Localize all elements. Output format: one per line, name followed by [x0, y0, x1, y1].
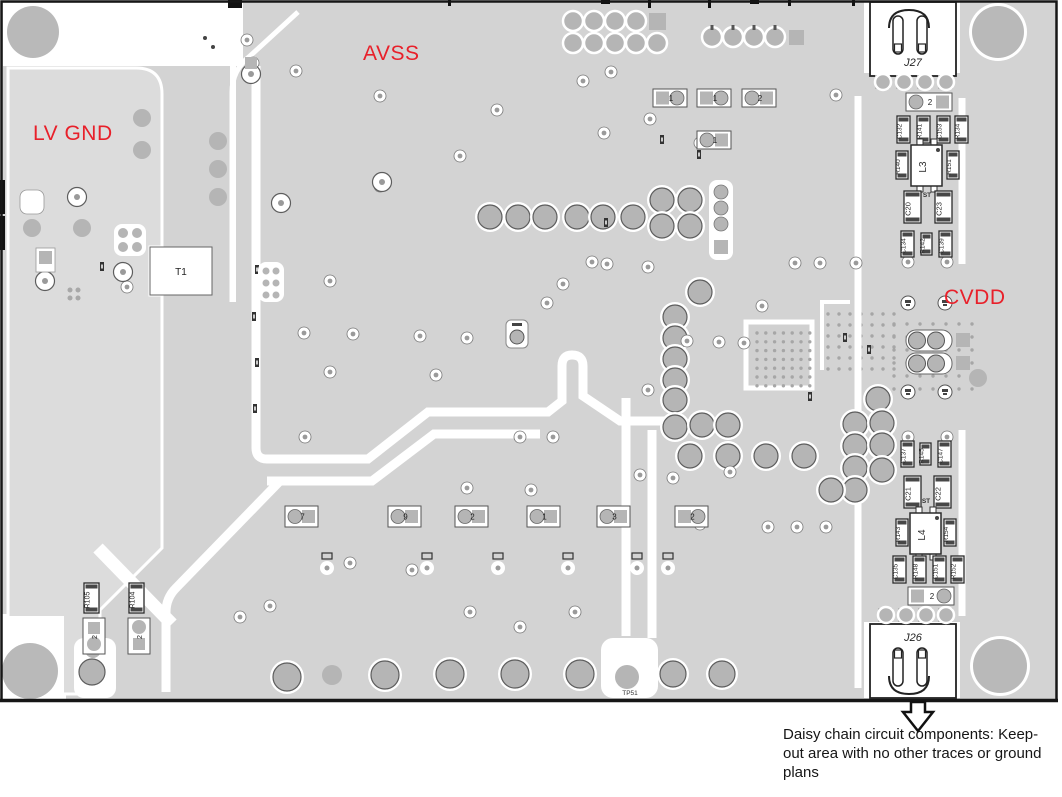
- via-hole: [303, 435, 308, 440]
- jumper: 1: [653, 89, 687, 107]
- passive-component: R145: [919, 443, 932, 465]
- via-hole: [742, 341, 747, 346]
- passive-label: R134: [955, 123, 962, 139]
- fiducial-dot: [957, 387, 960, 390]
- passive-label: C23: [935, 202, 944, 216]
- dot: [76, 288, 81, 293]
- fiducial-dot: [791, 340, 794, 343]
- plain-pad: [73, 219, 91, 237]
- passive-label: C134: [901, 238, 908, 254]
- fiducial-dot: [848, 367, 851, 370]
- pin-mark: [753, 25, 756, 30]
- plain-pad: [209, 160, 227, 178]
- fiducial-dot: [826, 367, 829, 370]
- module-pin: [917, 139, 923, 145]
- fiducial-dot: [892, 348, 895, 351]
- pad: [898, 607, 914, 623]
- pad: [510, 330, 524, 344]
- fiducial-dot: [755, 331, 758, 334]
- via-hole: [793, 261, 798, 266]
- passive-label: R141: [917, 123, 924, 139]
- passive-label: C151: [933, 563, 940, 579]
- pin1-dot: [936, 148, 940, 152]
- plain-pad: [209, 188, 227, 206]
- pad: [936, 96, 949, 109]
- passive-cap: [935, 558, 945, 562]
- fiducial-dot: [881, 356, 884, 359]
- via-hole: [605, 262, 610, 267]
- fiducial-dot: [808, 358, 811, 361]
- via-hole: [824, 525, 829, 530]
- fiducial-dot: [808, 367, 811, 370]
- via-hole: [468, 610, 473, 615]
- jumper: 7: [285, 506, 318, 527]
- pad: [909, 332, 926, 349]
- fiducial-dot: [905, 374, 908, 377]
- via-hole: [906, 435, 911, 440]
- jumper-label: 2: [690, 513, 695, 522]
- via-hole: [328, 279, 333, 284]
- fiducial-dot: [837, 312, 840, 315]
- fiducial-dot: [826, 323, 829, 326]
- passive-label: R152: [951, 563, 958, 579]
- fiducial-dot: [755, 375, 758, 378]
- via-hole: [378, 94, 383, 99]
- passive-component: R154: [943, 519, 956, 546]
- pad: [909, 355, 926, 372]
- pad: [700, 92, 713, 105]
- fiducial-dot: [799, 375, 802, 378]
- fiducial-dot: [848, 323, 851, 326]
- module-pin: [916, 507, 922, 513]
- pad-mark: [942, 389, 948, 392]
- fiducial-dot: [837, 334, 840, 337]
- passive-component: R151: [946, 151, 959, 179]
- fiducial-dot: [799, 358, 802, 361]
- passive-label: C139: [939, 238, 946, 254]
- pad-mark: [906, 393, 910, 395]
- header-pin: [714, 217, 728, 231]
- jumper-label: 1: [542, 513, 547, 522]
- passive-cap: [906, 193, 920, 197]
- header-pin: [714, 201, 728, 215]
- via-hole: [945, 260, 950, 265]
- fiducial-dot: [791, 375, 794, 378]
- passive-component: R152: [951, 556, 965, 583]
- pad: [245, 57, 257, 69]
- through-pad: [690, 413, 714, 437]
- through-pad: [819, 478, 843, 502]
- testpoint-hole: [496, 566, 501, 571]
- dot: [68, 288, 73, 293]
- fiducial-dot: [970, 335, 973, 338]
- fiducial-dot: [782, 349, 785, 352]
- pad: [928, 332, 945, 349]
- via-hole: [646, 388, 651, 393]
- fiducial-dot: [826, 356, 829, 359]
- passive-cap: [898, 153, 907, 157]
- through-pad: [870, 458, 894, 482]
- pad-mark: [905, 389, 911, 392]
- via-hole: [760, 304, 765, 309]
- smd-glyph: [868, 348, 870, 352]
- pin-mark: [774, 25, 777, 30]
- passive-component: C153: [937, 116, 951, 143]
- fiducial-dot: [837, 345, 840, 348]
- via-hole: [590, 260, 595, 265]
- through-pad: [79, 659, 105, 685]
- fiducial-dot: [918, 374, 921, 377]
- through-pad: [678, 214, 702, 238]
- passive-label: R148: [913, 563, 920, 579]
- via-hole: [379, 179, 385, 185]
- pcb-figure: J27J2622C132R141C153R134R140R151L3STC20C…: [0, 0, 1062, 797]
- smd-glyph: [605, 221, 607, 225]
- mounting-hole: [972, 6, 1024, 58]
- via-hole: [671, 476, 676, 481]
- smd-glyph: [254, 407, 256, 411]
- through-pad: [533, 205, 557, 229]
- passive-label: R145: [919, 448, 926, 464]
- fiducial-dot: [881, 334, 884, 337]
- passive-label: C135: [893, 563, 900, 579]
- fiducial-dot: [848, 345, 851, 348]
- fiducial-dot: [755, 349, 758, 352]
- via-hole: [551, 435, 556, 440]
- via-hole: [294, 69, 299, 74]
- mounting-hole: [973, 639, 1027, 693]
- module-label: L3: [918, 161, 929, 173]
- through-pad: [506, 205, 530, 229]
- fiducial-dot: [773, 358, 776, 361]
- pad-cluster: [258, 262, 284, 302]
- fiducial-dot: [881, 323, 884, 326]
- dot: [68, 296, 73, 301]
- fiducial-dot: [764, 349, 767, 352]
- pad: [656, 92, 669, 105]
- passive-label: R105: [85, 592, 92, 609]
- fiducial-dot: [782, 331, 785, 334]
- fiducial-dot: [881, 345, 884, 348]
- fiducial-dot: [870, 323, 873, 326]
- fiducial-dot: [931, 374, 934, 377]
- fiducial-dot: [957, 348, 960, 351]
- fiducial-dot: [791, 331, 794, 334]
- via-hole: [766, 525, 771, 530]
- pad-cluster: [114, 224, 146, 256]
- testpoint-hole: [325, 566, 330, 571]
- passive-component: C20: [904, 191, 922, 223]
- fiducial-dot: [773, 384, 776, 387]
- testpoint-hole: [635, 566, 640, 571]
- fiducial-dot: [764, 340, 767, 343]
- pad: [878, 607, 894, 623]
- via-hole: [581, 79, 586, 84]
- passive-cap: [903, 233, 913, 237]
- lv-gnd-label: LV GND: [33, 122, 113, 145]
- fiducial-dot: [970, 361, 973, 364]
- connector: J27: [870, 2, 956, 76]
- through-pad: [688, 280, 712, 304]
- plain-pad: [23, 219, 41, 237]
- header-pin: [605, 11, 625, 31]
- via-hole: [834, 93, 839, 98]
- fiducial-dot: [870, 312, 873, 315]
- fiducial-dot: [799, 331, 802, 334]
- via-hole: [458, 154, 463, 159]
- fiducial-dot: [970, 322, 973, 325]
- passive-cap: [957, 118, 967, 122]
- pin-mark: [732, 25, 735, 30]
- through-pad: [621, 205, 645, 229]
- passive-cap: [903, 443, 913, 447]
- via-hole: [495, 108, 500, 113]
- jumper-label: 9: [403, 513, 408, 522]
- pad: [937, 589, 951, 603]
- jumper: 2: [908, 587, 954, 605]
- fiducial-dot: [892, 334, 895, 337]
- via-hole: [410, 568, 415, 573]
- pad: [88, 622, 100, 634]
- dot: [203, 36, 207, 40]
- passive-cap: [923, 235, 931, 239]
- smd-glyph: [253, 315, 255, 319]
- passive-label: R143: [895, 526, 902, 542]
- through-pad: [436, 660, 464, 688]
- through-pad: [792, 444, 816, 468]
- passive-cap: [915, 558, 925, 562]
- pad: [263, 292, 270, 299]
- jumper: 2: [906, 93, 952, 111]
- via-hole: [245, 38, 250, 43]
- fiducial-dot: [848, 334, 851, 337]
- via-hole: [302, 331, 307, 336]
- jumper-label: 1: [713, 94, 718, 103]
- through-pad: [663, 388, 687, 412]
- pad: [118, 242, 128, 252]
- pad: [909, 95, 923, 109]
- passive-label: C20: [904, 202, 913, 216]
- testpoint-hole: [666, 566, 671, 571]
- via-hole: [717, 340, 722, 345]
- via-hole: [648, 117, 653, 122]
- passive-cap: [940, 443, 950, 447]
- fiducial-dot: [755, 358, 758, 361]
- fiducial-dot: [808, 375, 811, 378]
- pad: [896, 74, 912, 90]
- smd-glyph: [698, 153, 700, 157]
- via-hole: [854, 261, 859, 266]
- avss-label: AVSS: [363, 42, 419, 65]
- fiducial-dot: [870, 356, 873, 359]
- fiducial-dot: [931, 322, 934, 325]
- passive-cap: [937, 193, 951, 197]
- jumper: 1: [697, 131, 731, 149]
- through-pad: [843, 478, 867, 502]
- via-hole: [529, 488, 534, 493]
- header-pin: [714, 185, 728, 199]
- passive-component: C22: [934, 476, 952, 508]
- passive-label: R154: [943, 526, 950, 542]
- fiducial-dot: [957, 322, 960, 325]
- dot: [76, 296, 81, 301]
- fiducial-dot: [892, 374, 895, 377]
- fiducial-dot: [799, 367, 802, 370]
- via-hole: [602, 131, 607, 136]
- through-pad: [566, 660, 594, 688]
- pin1-dot: [935, 516, 939, 520]
- header-pin1: [714, 240, 728, 254]
- connector: J26: [870, 624, 956, 698]
- jumper-label: 7: [300, 513, 305, 522]
- pcb-layout-figure: J27J2622C132R141C153R134R140R151L3STC20C…: [0, 0, 1062, 797]
- pad: [956, 333, 970, 347]
- module-pin: [930, 507, 936, 513]
- passive-cap: [86, 585, 98, 589]
- via-hole: [518, 435, 523, 440]
- fiducial-dot: [782, 375, 785, 378]
- pad: [273, 280, 280, 287]
- through-pad: [650, 214, 674, 238]
- fiducial-dot: [755, 367, 758, 370]
- fiducial-dot: [791, 384, 794, 387]
- via-hole: [573, 610, 578, 615]
- via-hole: [609, 70, 614, 75]
- through-pad: [870, 433, 894, 457]
- pad-mark: [943, 393, 947, 395]
- cvdd-label: CVDD: [944, 286, 1006, 309]
- passive-component: C137: [901, 441, 915, 467]
- jumper: 1: [527, 506, 560, 527]
- jumper-label: 2: [930, 592, 935, 601]
- via-hole: [818, 261, 823, 266]
- smd-glyph: [809, 395, 811, 399]
- pad-mark: [512, 323, 522, 326]
- via-hole: [728, 470, 733, 475]
- pad: [918, 607, 934, 623]
- passive-cap: [946, 521, 955, 525]
- pad: [956, 356, 970, 370]
- through-pad: [716, 444, 740, 468]
- passive-component: R143: [895, 519, 908, 546]
- fiducial-dot: [918, 322, 921, 325]
- via-hole: [561, 282, 566, 287]
- through-pad: [660, 661, 686, 687]
- fiducial-dot: [944, 322, 947, 325]
- passive-label: C137: [901, 448, 908, 464]
- via-hole: [120, 269, 126, 275]
- jumper: 2: [675, 506, 708, 527]
- fiducial-dot: [892, 323, 895, 326]
- through-pad: [478, 205, 502, 229]
- header-pin: [584, 11, 604, 31]
- pad-square: [20, 190, 44, 214]
- fiducial-dot: [892, 345, 895, 348]
- pad: [678, 510, 691, 523]
- pad: [132, 242, 142, 252]
- passive-cap: [895, 558, 905, 562]
- pad: [263, 268, 270, 275]
- through-pad: [678, 444, 702, 468]
- fiducial-dot: [892, 356, 895, 359]
- passive-component: C134: [901, 231, 915, 257]
- via-hole: [125, 285, 130, 290]
- fiducial-dot: [826, 312, 829, 315]
- fiducial-dot: [905, 348, 908, 351]
- via-hole: [545, 301, 550, 306]
- fiducial-dot: [791, 349, 794, 352]
- via-hole: [646, 265, 651, 270]
- fiducial-dot: [764, 384, 767, 387]
- fiducial-dot: [837, 323, 840, 326]
- fiducial-dot: [755, 340, 758, 343]
- fiducial-dot: [892, 387, 895, 390]
- through-pad: [716, 413, 740, 437]
- jumper-label: 2: [470, 513, 475, 522]
- passive-cap: [919, 118, 929, 122]
- via-hole: [268, 604, 273, 609]
- fiducial-dot: [905, 322, 908, 325]
- tp51-label: TP51: [622, 690, 638, 697]
- plain-pad: [133, 141, 151, 159]
- header-pin1: [649, 13, 666, 30]
- via-hole: [434, 373, 439, 378]
- passive-component: C151: [933, 556, 947, 583]
- via-hole: [328, 370, 333, 375]
- fiducial-dot: [782, 358, 785, 361]
- fiducial-dot: [881, 312, 884, 315]
- fiducial-dot: [782, 340, 785, 343]
- pad: [132, 228, 142, 238]
- passive-component: R134: [955, 116, 969, 143]
- pad: [263, 280, 270, 287]
- via-hole: [945, 435, 950, 440]
- t1-label: T1: [175, 267, 187, 278]
- passive-component: R105: [84, 583, 99, 613]
- fiducial-dot: [826, 334, 829, 337]
- through-pad: [754, 444, 778, 468]
- plain-pad: [322, 665, 342, 685]
- module-pin: [931, 139, 937, 145]
- passive-component: R142: [920, 233, 933, 255]
- connector-label: J26: [903, 632, 923, 644]
- testpoint-hole: [425, 566, 430, 571]
- fiducial-dot: [755, 384, 758, 387]
- passive-label: R140: [895, 159, 902, 175]
- through-pad: [501, 660, 529, 688]
- fiducial-dot: [773, 331, 776, 334]
- fiducial-dot: [773, 367, 776, 370]
- fiducial-dot: [764, 367, 767, 370]
- fiducial-dot: [764, 375, 767, 378]
- pad: [911, 590, 924, 603]
- passive-cap: [899, 118, 909, 122]
- jumper-vertical: 2: [128, 618, 150, 654]
- passive-cap: [906, 478, 920, 482]
- fiducial-dot: [808, 331, 811, 334]
- fiducial-dot: [970, 348, 973, 351]
- passive-cap: [949, 153, 958, 157]
- fiducial-dot: [782, 384, 785, 387]
- pad: [39, 251, 52, 264]
- passive-component: R104: [129, 583, 144, 613]
- silkscreen-st: ST: [922, 498, 930, 505]
- passive-cap: [939, 118, 949, 122]
- fiducial-dot: [881, 367, 884, 370]
- through-pad: [709, 661, 735, 687]
- fiducial-dot: [764, 358, 767, 361]
- jumper-label: 1: [713, 136, 718, 145]
